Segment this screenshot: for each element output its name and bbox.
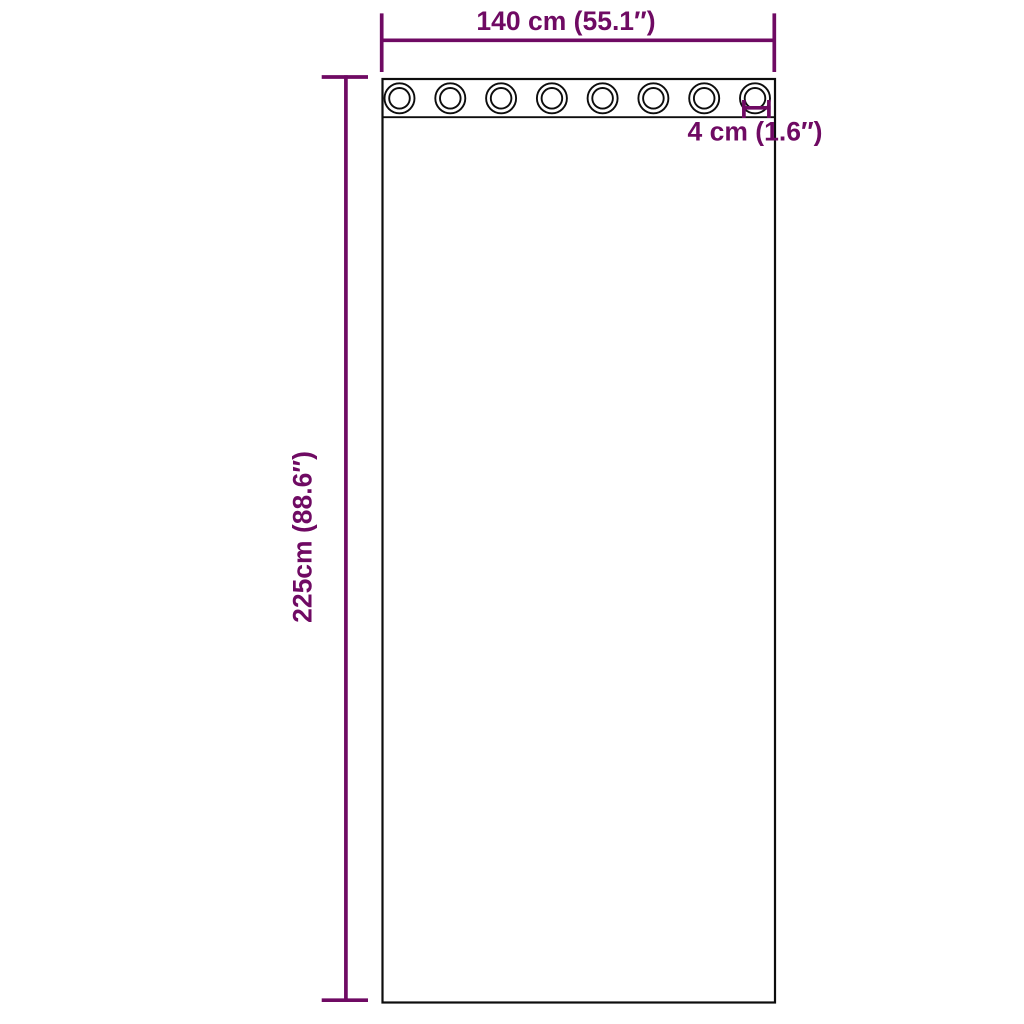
- svg-text:4 cm (1.6″): 4 cm (1.6″): [688, 117, 823, 147]
- svg-text:140 cm (55.1″): 140 cm (55.1″): [476, 6, 655, 36]
- svg-text:225cm (88.6″): 225cm (88.6″): [288, 451, 318, 623]
